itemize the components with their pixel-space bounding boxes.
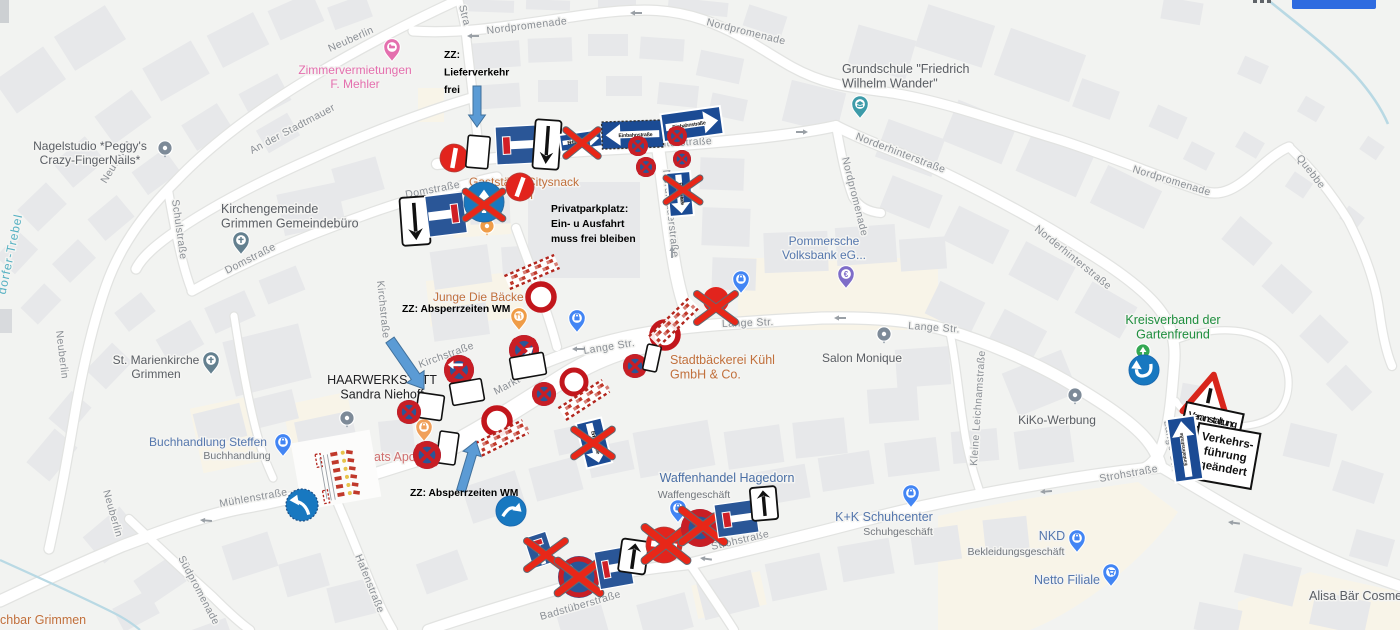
svg-text:Netto Filiale: Netto Filiale [1034, 573, 1100, 587]
svg-text:Kirchengemeinde: Kirchengemeinde [221, 202, 318, 216]
svg-text:Lieferverkehr: Lieferverkehr [444, 68, 509, 79]
svg-text:Waffengeschäft: Waffengeschäft [658, 489, 730, 501]
svg-text:Ein- u Ausfahrt: Ein- u Ausfahrt [551, 219, 625, 230]
svg-text:Alisa Bär Cosme: Alisa Bär Cosme [1309, 589, 1400, 603]
svg-text:F. Mehler: F. Mehler [330, 77, 379, 91]
svg-text:Schuhgeschäft: Schuhgeschäft [863, 526, 933, 538]
svg-text:Stadtbäckerei Kühl: Stadtbäckerei Kühl [670, 353, 775, 367]
svg-text:Bekleidungsgeschäft: Bekleidungsgeschäft [968, 546, 1065, 558]
svg-text:Crazy-FingerNails*: Crazy-FingerNails* [40, 153, 141, 167]
svg-text:Kreisverband der: Kreisverband der [1125, 313, 1220, 327]
svg-text:Zimmervermietungen: Zimmervermietungen [298, 63, 411, 77]
svg-text:Grimmen: Grimmen [131, 367, 180, 381]
svg-text:Gartenfreund: Gartenfreund [1136, 328, 1210, 342]
svg-text:€: € [844, 270, 849, 279]
svg-text:Salon Monique: Salon Monique [822, 351, 902, 365]
svg-text:Pommersche: Pommersche [789, 234, 860, 248]
svg-text:muss frei bleiben: muss frei bleiben [551, 234, 636, 245]
svg-text:frei: frei [444, 85, 460, 96]
svg-text:K+K Schuhcenter: K+K Schuhcenter [835, 510, 933, 524]
svg-text:Privatparkplatz:: Privatparkplatz: [551, 204, 628, 215]
svg-text:Volksbank eG...: Volksbank eG... [782, 248, 866, 262]
svg-text:ZZ: Absperrzeiten WM: ZZ: Absperrzeiten WM [402, 304, 510, 315]
svg-text:KiKo-Werbung: KiKo-Werbung [1018, 413, 1096, 427]
svg-text:Wilhelm Wander": Wilhelm Wander" [842, 77, 938, 91]
svg-text:ZZ:: ZZ: [444, 50, 460, 61]
svg-text:Sandra Niehoff: Sandra Niehoff [340, 388, 424, 402]
svg-text:chbar Grimmen: chbar Grimmen [0, 613, 86, 627]
svg-text:Grundschule "Friedrich: Grundschule "Friedrich [842, 62, 969, 76]
svg-text:Junge Die Bäcke: Junge Die Bäcke [433, 290, 524, 304]
svg-text:NKD: NKD [1039, 529, 1065, 543]
svg-text:Buchhandlung Steffen: Buchhandlung Steffen [149, 435, 267, 449]
svg-text:Grimmen Gemeindebüro: Grimmen Gemeindebüro [221, 217, 359, 231]
svg-text:St. Marienkirche: St. Marienkirche [113, 353, 200, 367]
svg-text:ZZ: Absperrzeiten WM: ZZ: Absperrzeiten WM [410, 488, 518, 499]
svg-text:Waffenhandel Hagedorn: Waffenhandel Hagedorn [660, 471, 795, 485]
svg-text:Nagelstudio *Peggy's: Nagelstudio *Peggy's [33, 139, 147, 153]
svg-text:Buchhandlung: Buchhandlung [203, 450, 270, 462]
svg-text:GmbH & Co.: GmbH & Co. [670, 368, 741, 382]
